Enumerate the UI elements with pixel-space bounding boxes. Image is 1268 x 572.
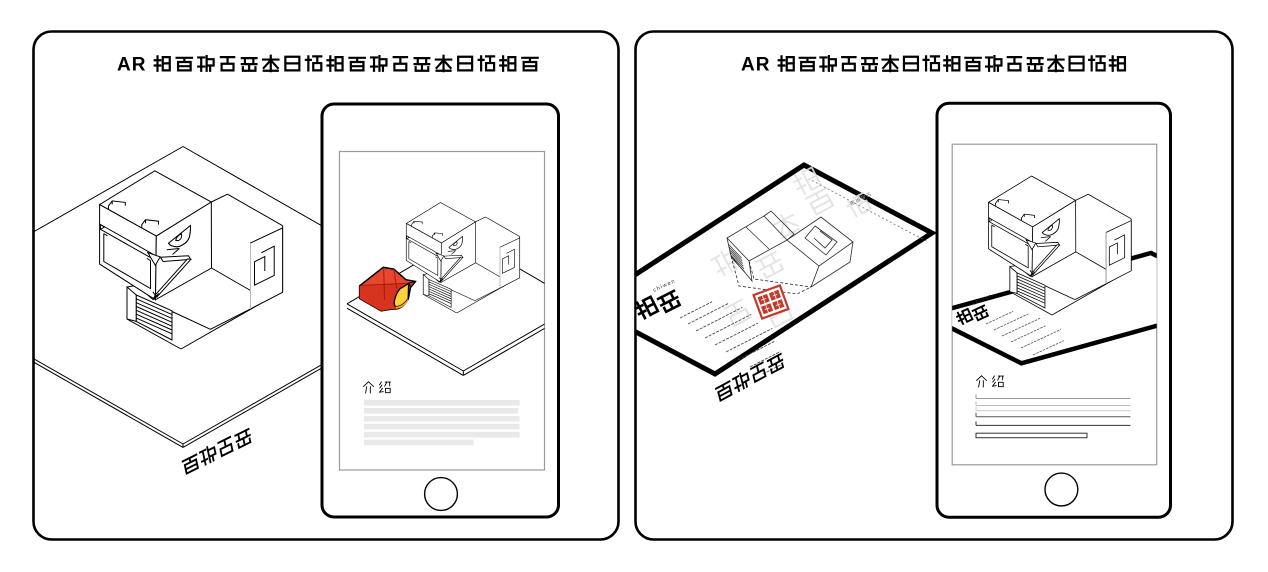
svg-text:AR: AR (741, 54, 770, 75)
svg-text:AR: AR (117, 54, 146, 75)
